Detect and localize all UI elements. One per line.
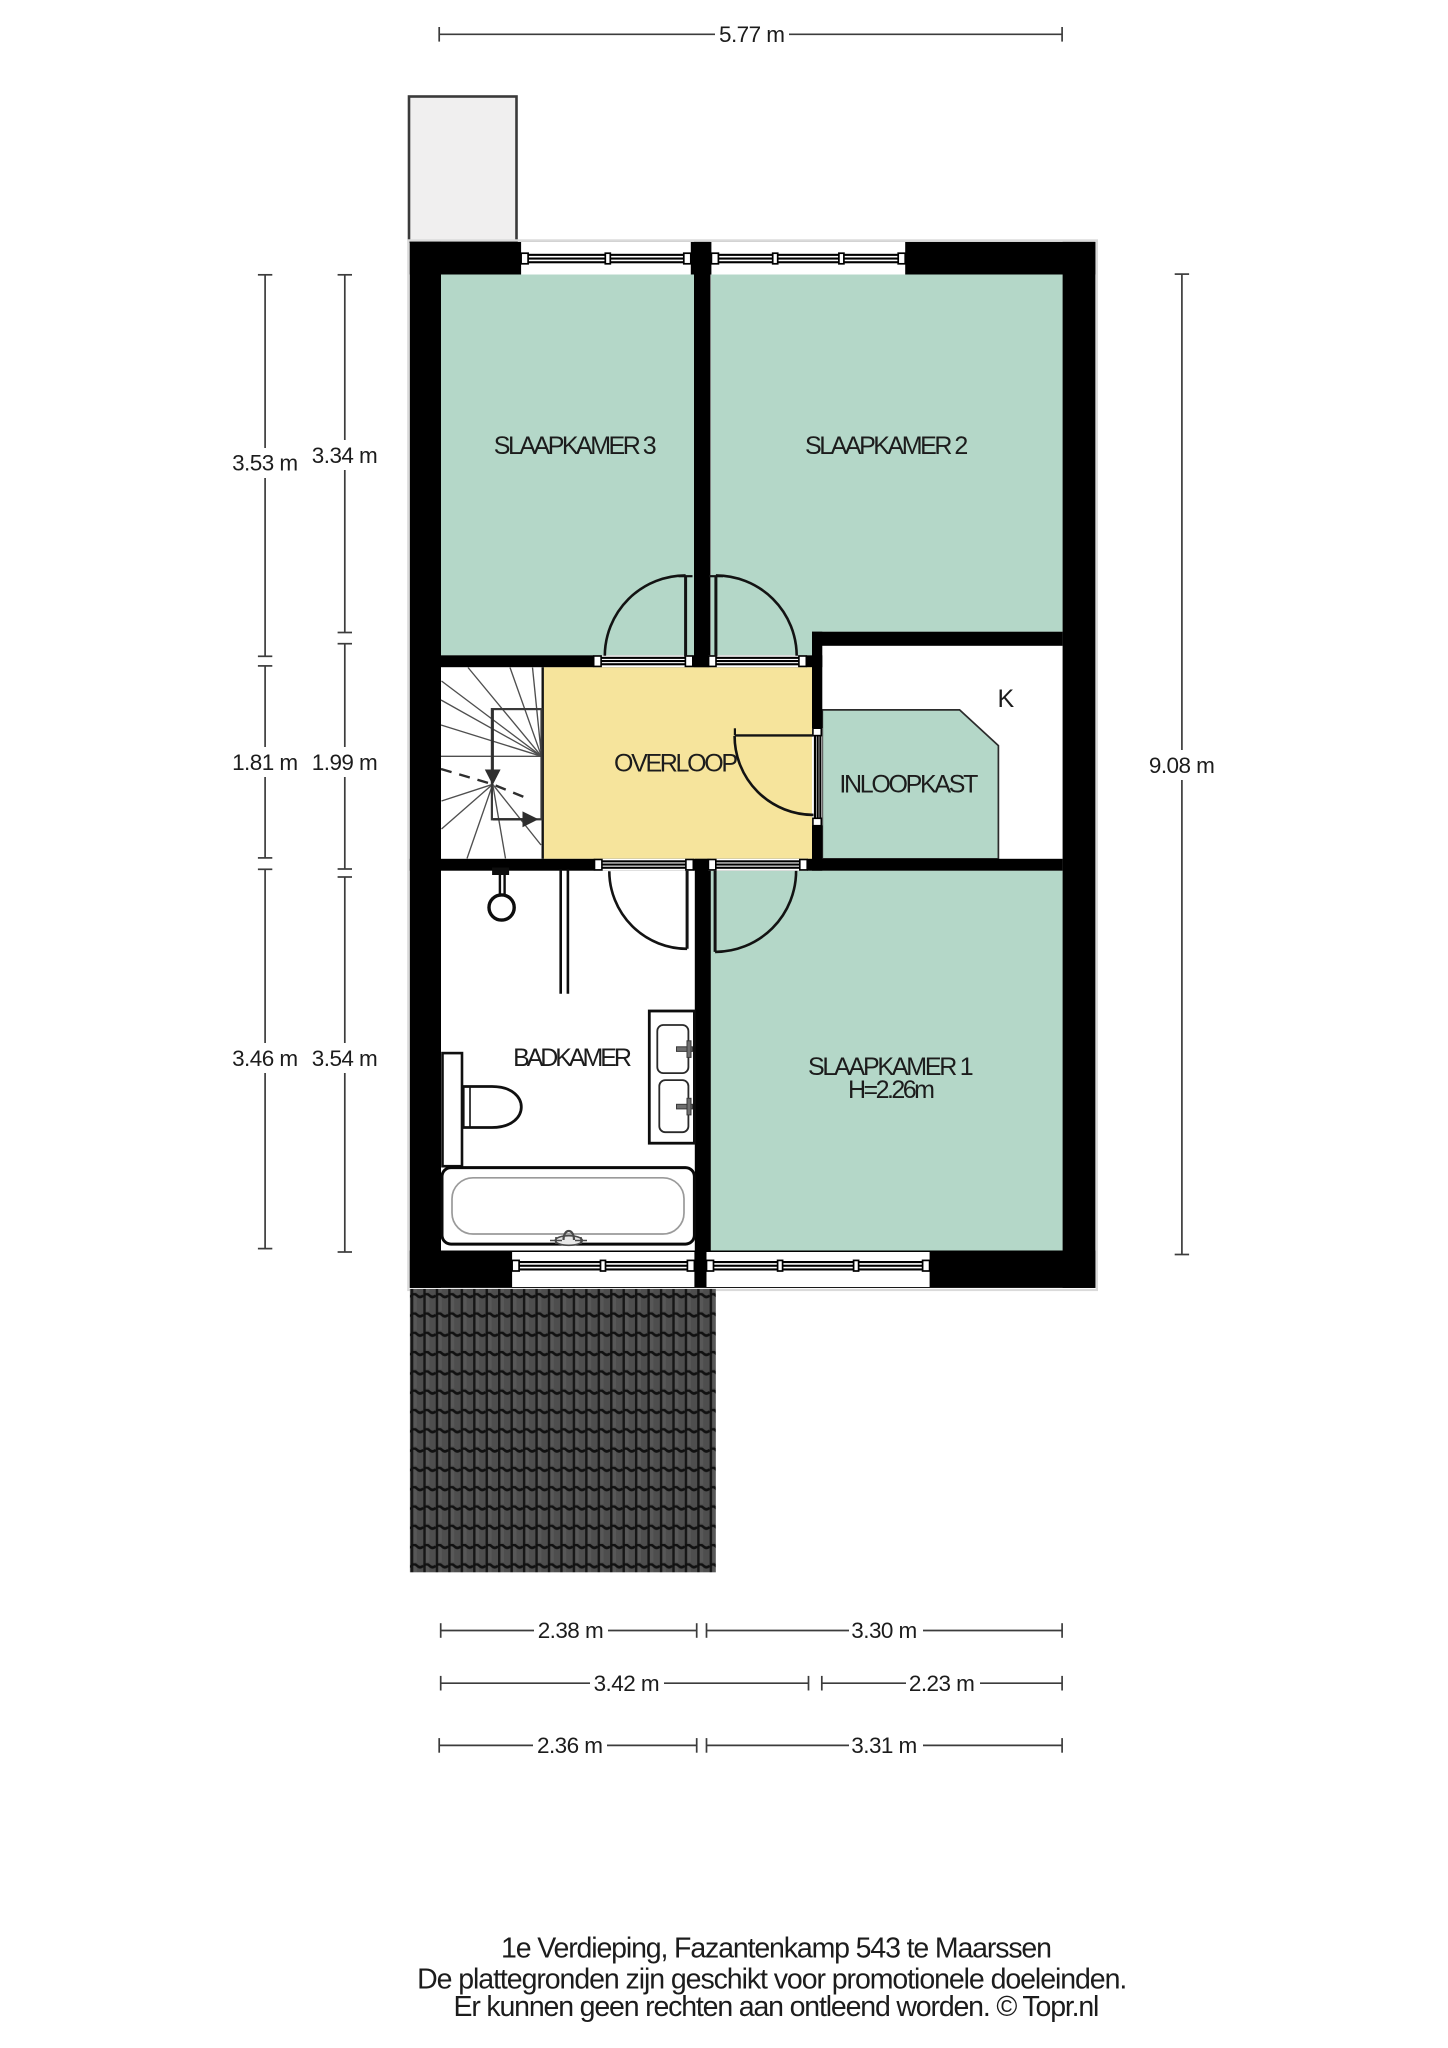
svg-text:OVERLOOP: OVERLOOP (614, 749, 738, 777)
svg-text:3.42 m: 3.42 m (594, 1671, 660, 1696)
svg-text:3.54 m: 3.54 m (312, 1046, 378, 1071)
svg-text:1.81 m: 1.81 m (232, 750, 298, 775)
svg-text:2.38 m: 2.38 m (538, 1618, 604, 1643)
svg-text:1e Verdieping, Fazantenkamp 54: 1e Verdieping, Fazantenkamp 543 te Maars… (501, 1933, 1052, 1965)
svg-text:3.53 m: 3.53 m (232, 451, 298, 476)
svg-text:H=2.26m: H=2.26m (848, 1076, 935, 1104)
svg-text:3.31 m: 3.31 m (851, 1733, 917, 1758)
svg-text:INLOOPKAST: INLOOPKAST (839, 771, 978, 799)
svg-text:3.46 m: 3.46 m (232, 1046, 298, 1071)
svg-text:3.34 m: 3.34 m (312, 443, 378, 468)
svg-text:2.36 m: 2.36 m (537, 1733, 603, 1758)
svg-text:SLAAPKAMER 3: SLAAPKAMER 3 (494, 432, 657, 460)
svg-text:SLAAPKAMER 2: SLAAPKAMER 2 (805, 432, 968, 460)
svg-text:5.77 m: 5.77 m (719, 22, 785, 47)
svg-text:3.30 m: 3.30 m (851, 1618, 917, 1643)
svg-text:BADKAMER: BADKAMER (513, 1044, 632, 1072)
svg-text:Er kunnen geen rechten aan ont: Er kunnen geen rechten aan ontleend word… (454, 1991, 1100, 2023)
svg-text:2.23 m: 2.23 m (909, 1671, 975, 1696)
svg-text:9.08 m: 9.08 m (1149, 753, 1215, 778)
svg-text:1.99 m: 1.99 m (312, 750, 378, 775)
svg-text:K: K (998, 685, 1015, 713)
